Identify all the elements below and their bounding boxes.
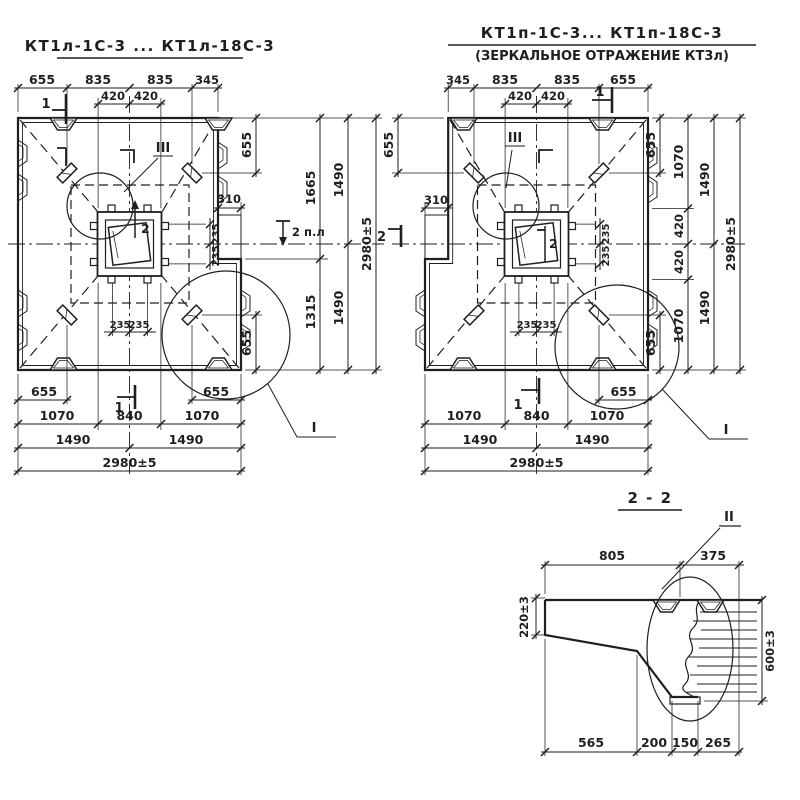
section-mark-1-bottom: 1 — [513, 398, 522, 413]
right-plan-view: КТ1п-1С-3... КТ1п-18С-3 (ЗЕРКАЛЬНОЕ ОТРА… — [377, 24, 756, 475]
dim: 235 — [211, 246, 222, 267]
dim: 1070 — [671, 308, 686, 343]
section-mark-2-right: 2 п.л — [292, 225, 325, 239]
dim: 150 — [672, 735, 698, 750]
dim: 1490 — [575, 432, 610, 447]
dim: 655 — [239, 132, 254, 158]
dim: 420 — [672, 214, 686, 238]
section-mark-2-center: 2 — [141, 221, 150, 236]
dim-overall: 2980±5 — [103, 455, 157, 470]
dim: 420 — [672, 250, 686, 274]
center-socket — [498, 205, 576, 283]
right-view-subtitle: (ЗЕРКАЛЬНОЕ ОТРАЖЕНИЕ КТ3л) — [475, 49, 729, 64]
lifting-loop — [57, 305, 77, 325]
dim: 200 — [641, 735, 667, 750]
detail-label-I: I — [312, 421, 317, 436]
dim: 345 — [195, 73, 219, 87]
dim: 840 — [523, 408, 549, 423]
dim: 805 — [599, 548, 625, 563]
right-view-title: КТ1п-1С-3... КТ1п-18С-3 — [481, 24, 724, 42]
section-2-2-view: 2 - 2 II 805 375 220±3 600±3 565 200 150… — [517, 489, 777, 756]
dim: 1490 — [697, 290, 712, 325]
dim: 835 — [554, 72, 580, 87]
dim: 1070 — [447, 408, 482, 423]
detail-ellipse-II — [647, 577, 733, 721]
dim: 1070 — [671, 144, 686, 179]
dim: 235 — [129, 320, 150, 331]
lifting-loop — [182, 163, 202, 183]
profile-outline — [545, 600, 698, 697]
section-mark-2-center: 2 — [549, 236, 558, 251]
dim: 655 — [239, 330, 254, 356]
lifting-loop — [464, 163, 484, 183]
dim-overall: 2980±5 — [510, 455, 564, 470]
hatch-lines — [687, 612, 757, 692]
dim: 420 — [134, 89, 158, 103]
dim: 1490 — [169, 432, 204, 447]
section-mark-1-top: 1 — [595, 85, 604, 100]
dim: 235 — [517, 320, 538, 331]
dim: 565 — [578, 735, 604, 750]
step-feature — [425, 215, 448, 259]
dim: 1315 — [303, 295, 318, 330]
dim: 235 — [211, 224, 222, 245]
dim: 835 — [85, 72, 111, 87]
dim: 1070 — [185, 408, 220, 423]
section-title: 2 - 2 — [627, 489, 672, 507]
detail-circle-I — [162, 271, 290, 399]
dim-overall: 2980±5 — [359, 217, 374, 271]
dim: 655 — [610, 72, 636, 87]
dim: 235 — [601, 224, 612, 245]
dim: 1490 — [331, 290, 346, 325]
dim: 1490 — [331, 162, 346, 197]
dim: 420 — [541, 89, 565, 103]
dim: 265 — [705, 735, 731, 750]
break-line — [683, 600, 700, 697]
left-view-title: КТ1л-1С-3 ... КТ1л-18С-3 — [25, 37, 275, 55]
dim: 655 — [643, 132, 658, 158]
lifting-loop — [464, 305, 484, 325]
dim: 1665 — [303, 171, 318, 206]
dim: 1490 — [463, 432, 498, 447]
dim: 235 — [601, 246, 612, 267]
centerlines — [392, 96, 747, 474]
dim: 310 — [424, 193, 448, 207]
section-mark-1-top: 1 — [41, 97, 50, 112]
dim-ticks — [532, 561, 766, 756]
dim: 655 — [643, 330, 658, 356]
dim: 1070 — [590, 408, 625, 423]
dim: 420 — [101, 89, 125, 103]
lifting-loop — [589, 163, 609, 183]
detail-label-III: III — [508, 131, 523, 146]
dim: 1490 — [697, 162, 712, 197]
detail-label-III: III — [156, 141, 171, 156]
dim: 420 — [508, 89, 532, 103]
dim: 1490 — [56, 432, 91, 447]
left-plan-view: КТ1л-1С-3 ... КТ1л-18С-3 — [8, 37, 384, 475]
technical-drawing: КТ1л-1С-3 ... КТ1л-18С-3 — [0, 0, 800, 800]
lifting-loop — [57, 163, 77, 183]
dim: 1070 — [40, 408, 75, 423]
dim: 310 — [217, 192, 241, 206]
lifting-loop — [589, 305, 609, 325]
dim-overall: 2980±5 — [723, 217, 738, 271]
dim: 375 — [700, 548, 726, 563]
dim: 600±3 — [763, 630, 777, 672]
detail-label-I: I — [724, 423, 729, 438]
lifting-loop — [182, 305, 202, 325]
dim: 235 — [110, 320, 131, 331]
dim: 655 — [31, 384, 57, 399]
section-mark-1-bottom: 1 — [114, 401, 123, 416]
dim: 835 — [492, 72, 518, 87]
dim: 235 — [536, 320, 557, 331]
section-mark-2-left: 2 — [377, 230, 386, 245]
dim: 345 — [446, 73, 470, 87]
extension-lines — [392, 84, 746, 475]
dim: 220±3 — [517, 596, 531, 638]
detail-label-II: II — [724, 510, 734, 525]
center-socket — [91, 205, 169, 283]
dimension-lines — [536, 565, 762, 752]
dim: 655 — [610, 384, 636, 399]
dim: 655 — [203, 384, 229, 399]
dim: 655 — [29, 72, 55, 87]
dim: 655 — [381, 132, 396, 158]
dim: 835 — [147, 72, 173, 87]
